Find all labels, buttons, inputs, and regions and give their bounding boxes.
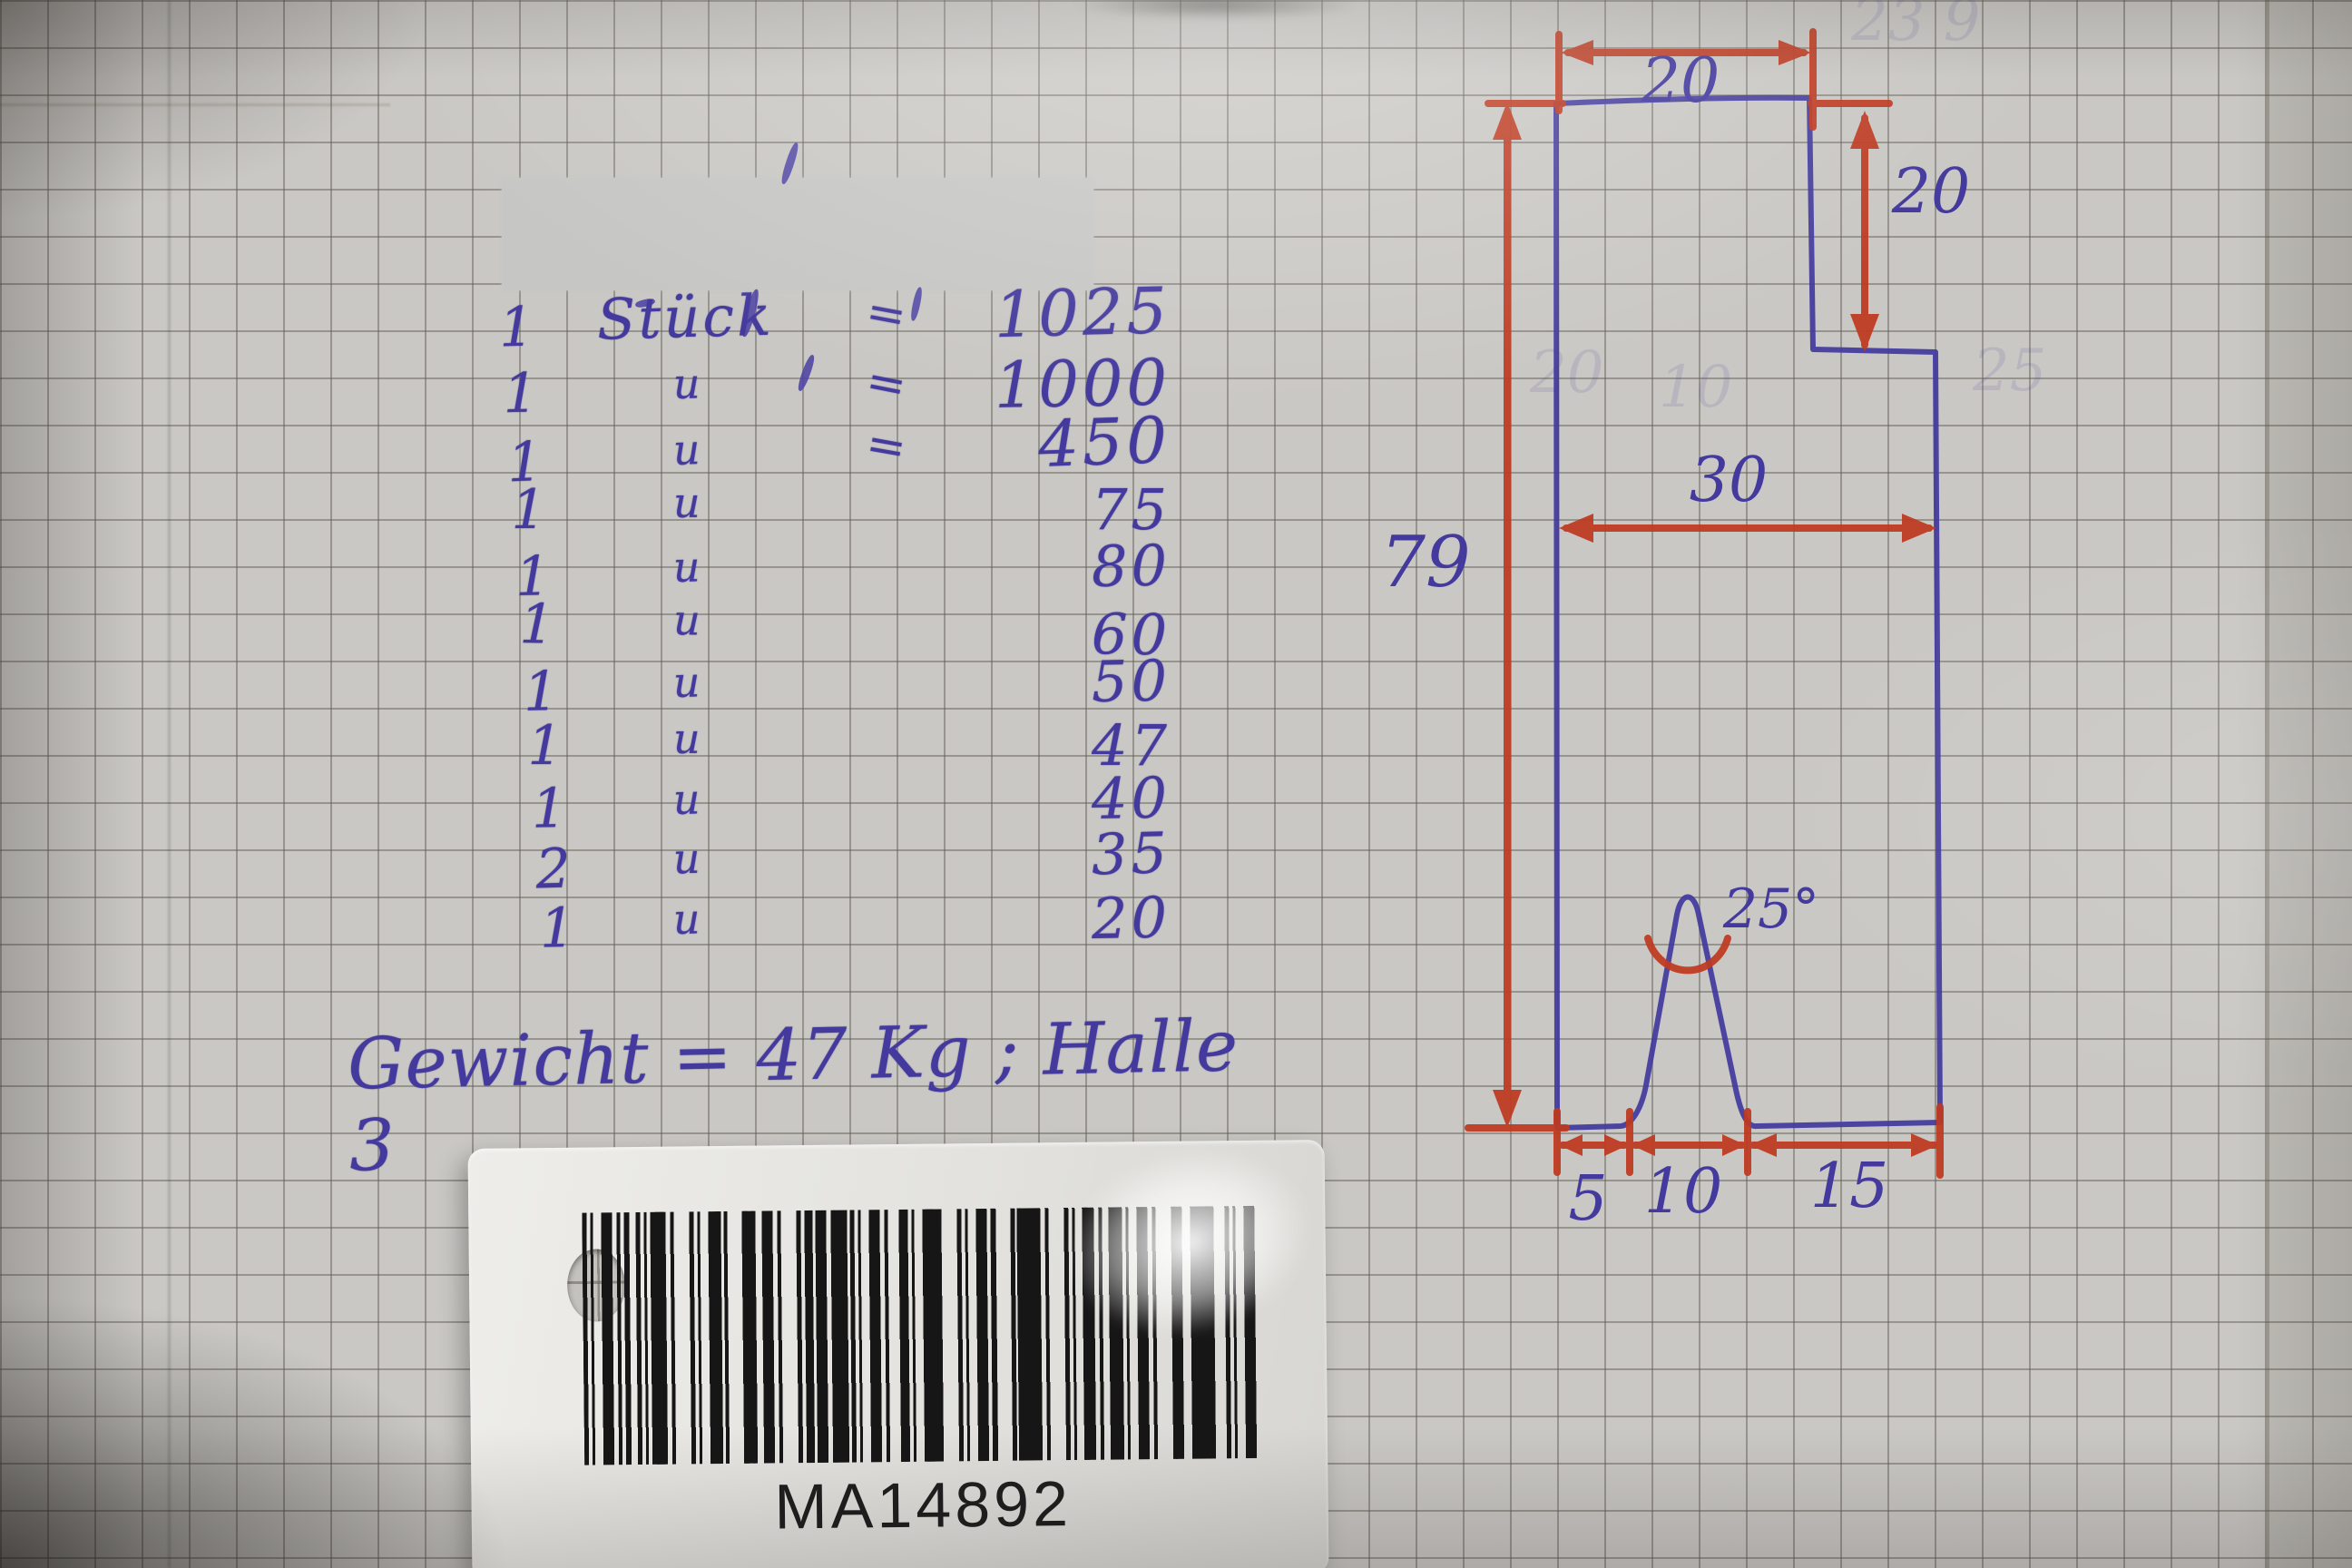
qty-cell: 1 bbox=[531, 776, 566, 842]
value-cell: 1025 bbox=[897, 278, 1182, 350]
qty-cell: 1 bbox=[512, 477, 546, 543]
barcode-tag: MA14892 bbox=[468, 1140, 1329, 1568]
dim-top-width-label: 20 bbox=[1641, 45, 1720, 117]
barcode-code: MA14892 bbox=[584, 1465, 1261, 1545]
dim-total-height-label: 79 bbox=[1380, 522, 1470, 603]
photo-of-worksheet: 1Stück=10251u=10001u=4501u751u801u601u50… bbox=[0, 0, 2352, 1568]
qty-cell: 2 bbox=[535, 837, 572, 903]
ditto-mark: u bbox=[672, 887, 701, 953]
dim-mid-width-line bbox=[1559, 514, 1936, 543]
notch-angle-arc bbox=[1648, 938, 1728, 970]
value-cell: 80 bbox=[897, 533, 1173, 603]
dim-bottom-right-label: 15 bbox=[1810, 1151, 1889, 1222]
qty-cell: 1 bbox=[519, 592, 554, 658]
redaction-box bbox=[502, 178, 1093, 290]
dim-bottom-mid-label: 10 bbox=[1644, 1156, 1723, 1228]
value-cell: 50 bbox=[897, 648, 1171, 718]
qty-cell: 1 bbox=[539, 896, 574, 962]
dim-right-height-label: 20 bbox=[1891, 156, 1971, 228]
parts-list: 1Stück=10251u=10001u=4501u751u801u601u50… bbox=[472, 288, 1189, 977]
qty-cell: 1 bbox=[528, 713, 563, 779]
ditto-mark: u bbox=[672, 767, 701, 833]
dimension-lines bbox=[1468, 32, 1940, 1175]
ghost-mark: 25 bbox=[1972, 338, 2046, 405]
paper-edge-shade bbox=[2269, 0, 2352, 1568]
qty-cell: 1 bbox=[503, 361, 538, 427]
list-row: 1u20 bbox=[471, 885, 1189, 963]
list-row: 1u75 bbox=[472, 477, 1189, 543]
ditto-mark: u bbox=[673, 470, 701, 535]
ditto-mark: u bbox=[673, 706, 701, 771]
ditto-mark: u bbox=[672, 826, 701, 892]
item-cell: Stück bbox=[596, 283, 774, 353]
value-cell: 20 bbox=[897, 885, 1196, 955]
ghost-mark: 23 9 bbox=[1850, 0, 1981, 54]
paper-crease-vertical bbox=[168, 0, 171, 1568]
notch-angle-label: 25° bbox=[1722, 877, 1819, 941]
paper-crease-horizontal bbox=[0, 103, 390, 106]
part-outline bbox=[1556, 98, 1940, 1128]
ditto-mark: u bbox=[673, 587, 701, 653]
dim-total-height-line bbox=[1468, 102, 1566, 1128]
value-cell: 35 bbox=[897, 820, 1191, 893]
value-cell: 450 bbox=[897, 407, 1171, 482]
ghost-mark: 20 bbox=[1529, 339, 1603, 407]
dim-bottom-left-label: 5 bbox=[1568, 1163, 1607, 1235]
technical-drawing: 20 10 25 23 9 bbox=[1343, 0, 2151, 1325]
ditto-mark: u bbox=[672, 351, 701, 417]
dim-mid-width-label: 30 bbox=[1690, 445, 1769, 516]
ghost-mark: 10 bbox=[1659, 354, 1732, 421]
qty-cell: 1 bbox=[498, 295, 534, 361]
dim-right-height-line bbox=[1811, 103, 1889, 352]
